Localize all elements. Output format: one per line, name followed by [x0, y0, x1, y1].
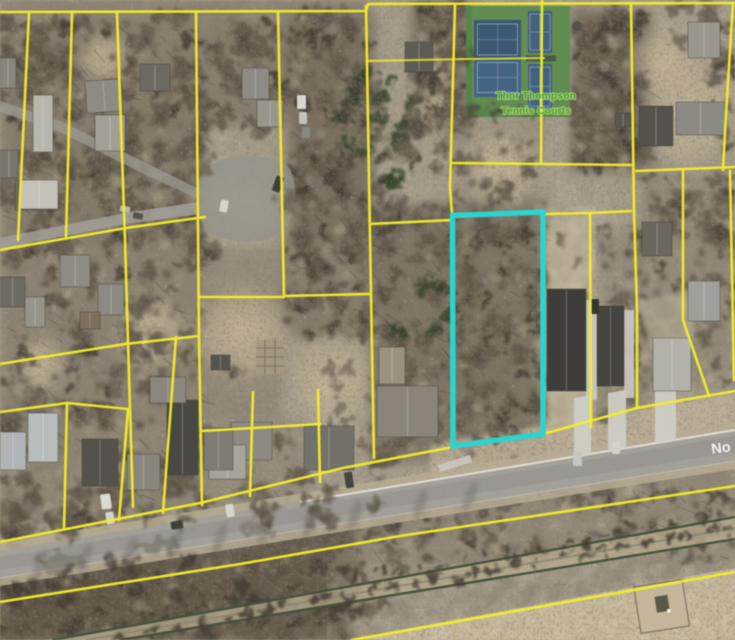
svg-text:No: No — [710, 439, 732, 458]
svg-text:Tennis Courts: Tennis Courts — [501, 105, 571, 117]
svg-text:Thor Thompson: Thor Thompson — [496, 90, 576, 102]
